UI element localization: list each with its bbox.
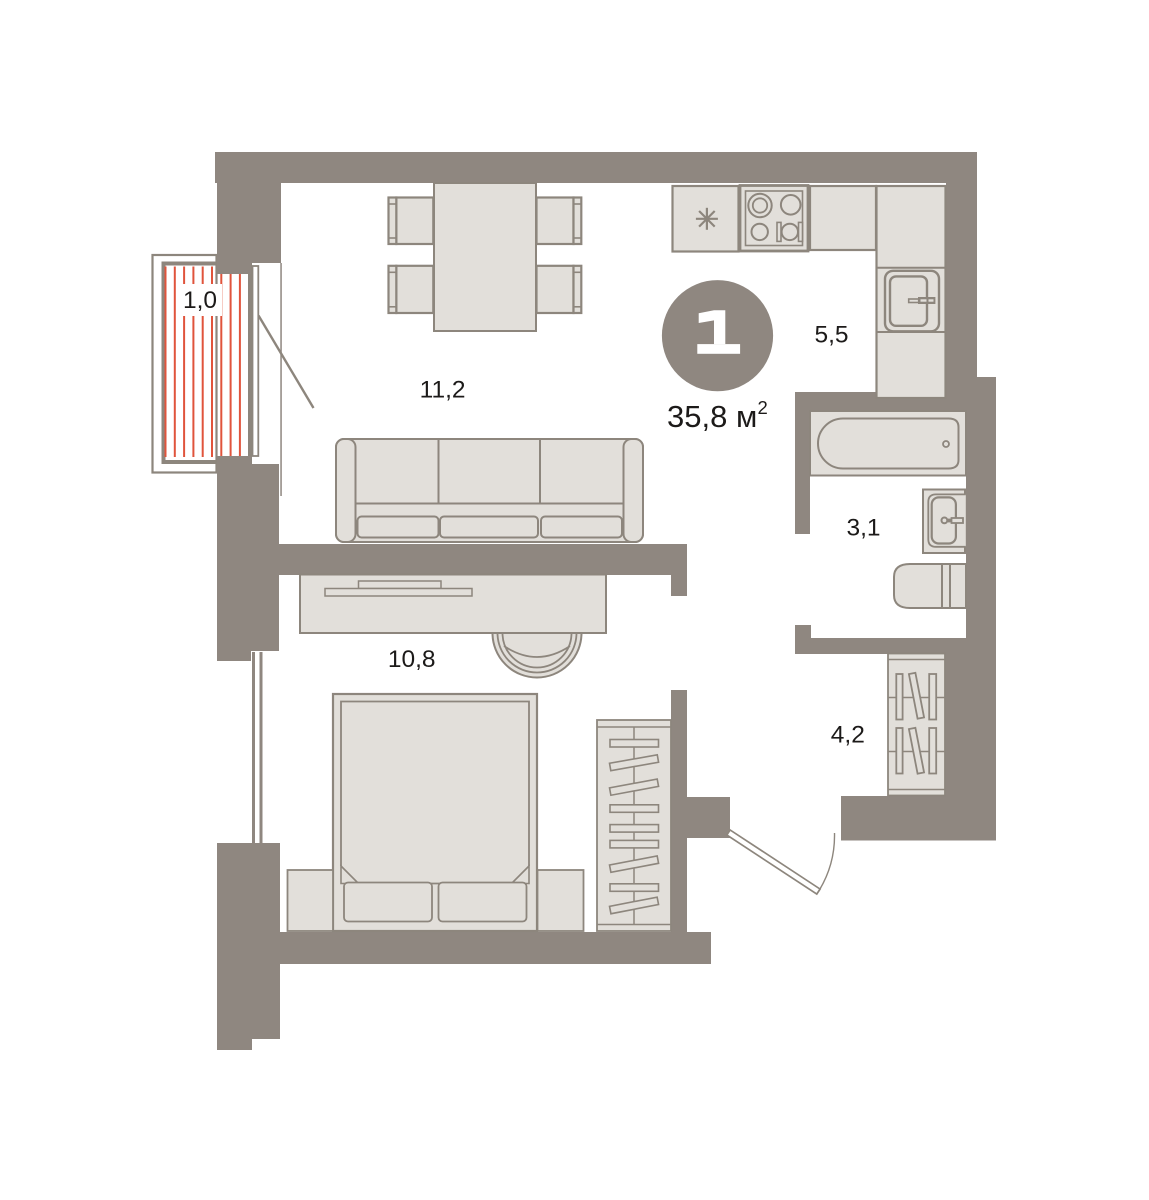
svg-text:4,2: 4,2: [831, 721, 865, 748]
svg-text:1,0: 1,0: [183, 287, 217, 314]
svg-text:11,2: 11,2: [420, 377, 466, 404]
svg-text:10,8: 10,8: [388, 646, 436, 673]
svg-text:2: 2: [758, 397, 768, 418]
svg-text:3,1: 3,1: [846, 515, 880, 542]
svg-text:35,8 м: 35,8 м: [667, 399, 757, 434]
svg-text:5,5: 5,5: [814, 322, 848, 349]
